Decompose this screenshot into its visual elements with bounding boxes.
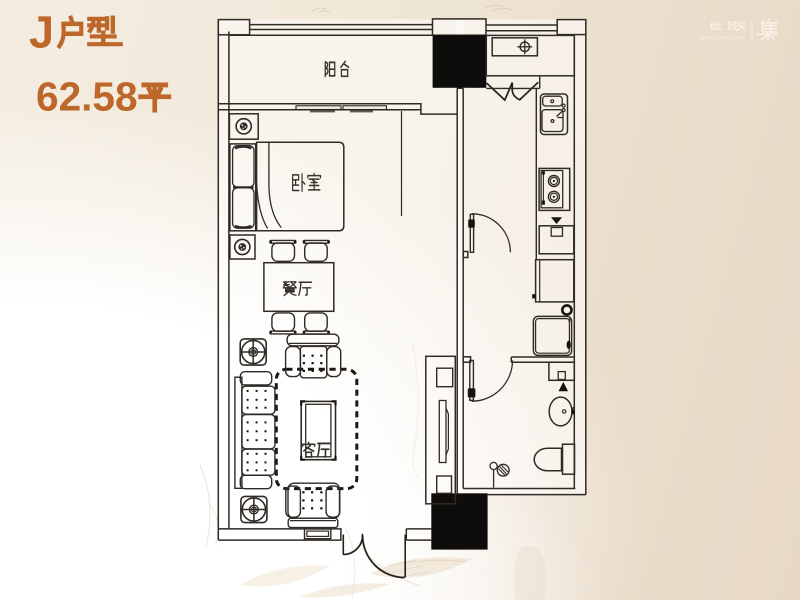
- svg-text:62.58: 62.58: [36, 74, 138, 120]
- svg-text:worldunionji.com: worldunionji.com: [699, 34, 746, 41]
- svg-text:J: J: [29, 7, 54, 58]
